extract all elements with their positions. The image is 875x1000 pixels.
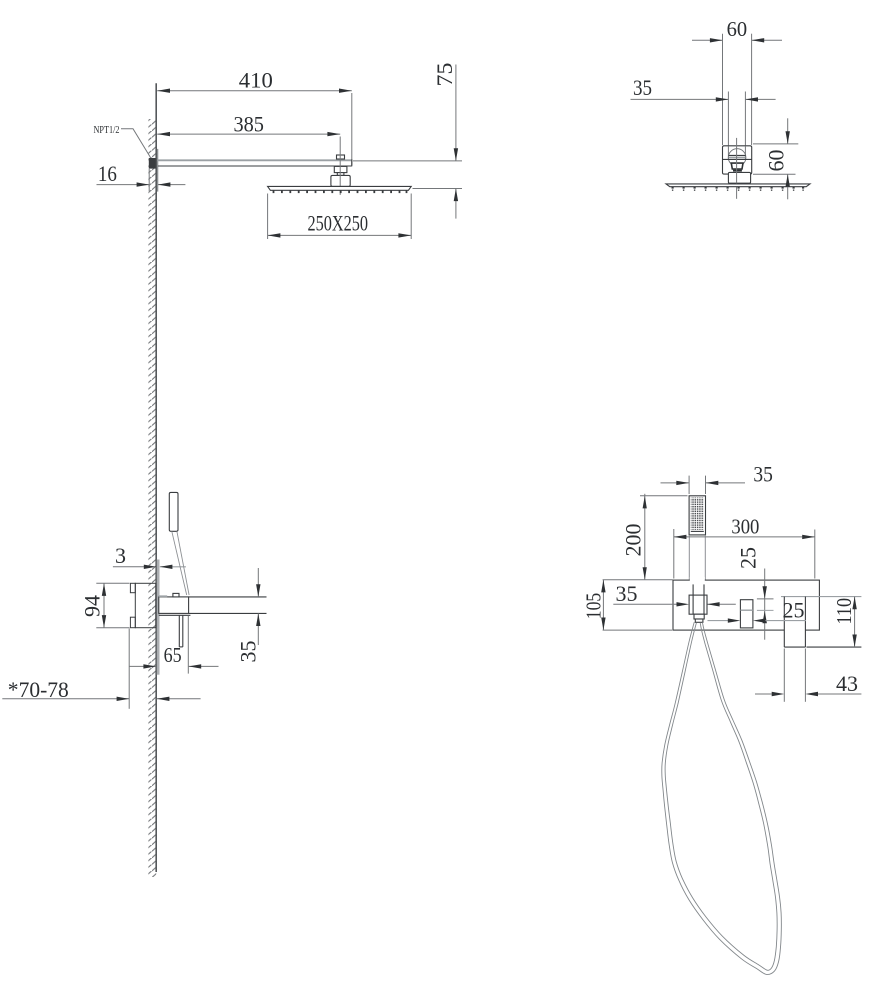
svg-text:25: 25 [783, 598, 805, 623]
svg-text:300: 300 [731, 515, 759, 539]
svg-text:43: 43 [836, 671, 858, 696]
svg-text:200: 200 [621, 524, 646, 557]
svg-text:3: 3 [115, 543, 126, 568]
svg-text:35: 35 [616, 581, 638, 606]
svg-text:250X250: 250X250 [308, 211, 369, 236]
svg-text:16: 16 [98, 161, 117, 186]
svg-text:25: 25 [736, 547, 761, 569]
svg-text:410: 410 [239, 68, 273, 93]
svg-text:65: 65 [164, 643, 182, 667]
svg-text:60: 60 [764, 150, 789, 172]
svg-text:105: 105 [582, 593, 606, 620]
svg-text:385: 385 [233, 112, 264, 137]
svg-text:94: 94 [80, 595, 105, 617]
svg-text:35: 35 [633, 75, 652, 100]
svg-text:*70-78: *70-78 [8, 677, 69, 702]
svg-text:NPT1/2: NPT1/2 [94, 125, 120, 136]
svg-text:35: 35 [753, 462, 773, 487]
svg-text:110: 110 [832, 598, 856, 625]
svg-text:75: 75 [432, 63, 457, 87]
svg-text:60: 60 [727, 17, 748, 41]
svg-text:35: 35 [236, 641, 261, 663]
